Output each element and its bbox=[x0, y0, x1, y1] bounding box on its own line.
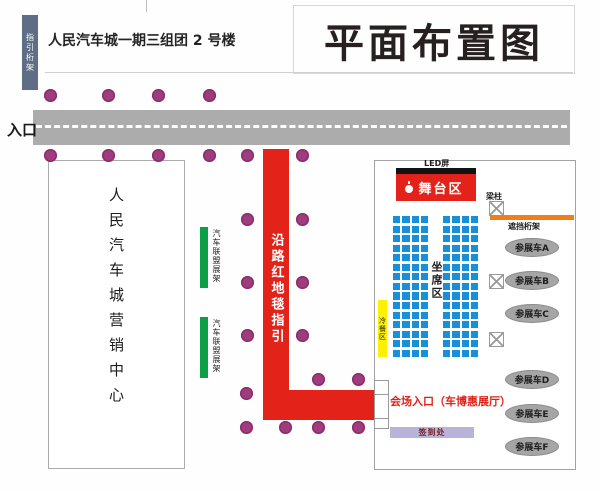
seat bbox=[462, 312, 469, 319]
exhibit-car-c: 参展车C bbox=[505, 304, 559, 323]
seat bbox=[443, 235, 450, 242]
guide-truss-box: 指引桁架 bbox=[22, 15, 38, 90]
shade-truss-bar bbox=[490, 215, 574, 220]
seat bbox=[393, 254, 400, 261]
seat bbox=[393, 235, 400, 242]
seat bbox=[452, 302, 459, 309]
exhibit-car-a: 参展车A bbox=[505, 238, 559, 257]
title-box: 平面布置图 bbox=[293, 5, 575, 74]
seat bbox=[443, 216, 450, 223]
seat bbox=[443, 321, 450, 328]
marketing-center-box: 人民汽车城营销中心 bbox=[48, 160, 185, 469]
buffet-area-label: 冷餐区 bbox=[378, 317, 388, 341]
seat bbox=[471, 331, 478, 338]
seat bbox=[452, 321, 459, 328]
seat bbox=[462, 254, 469, 261]
seat bbox=[402, 254, 409, 261]
seat bbox=[462, 321, 469, 328]
guide-truss-label: 指引桁架 bbox=[25, 33, 36, 73]
seat bbox=[471, 350, 478, 357]
exhibit-car-b: 参展车B bbox=[505, 271, 559, 290]
seat bbox=[421, 312, 428, 319]
seat bbox=[452, 292, 459, 299]
seat bbox=[421, 292, 428, 299]
seat bbox=[402, 235, 409, 242]
header-tick-line bbox=[146, 0, 147, 12]
seat bbox=[443, 292, 450, 299]
buffet-area-bar: 冷餐区 bbox=[378, 300, 387, 357]
seat bbox=[421, 283, 428, 290]
pillar-marker-icon bbox=[489, 201, 504, 216]
guide-dot bbox=[203, 89, 216, 102]
seat bbox=[471, 283, 478, 290]
seat bbox=[443, 350, 450, 357]
exhibit-car-e: 参展车E bbox=[505, 404, 559, 423]
seat bbox=[452, 331, 459, 338]
alliance-rack-label: 汽车联盟展架 bbox=[211, 229, 222, 283]
seat bbox=[412, 321, 419, 328]
seat bbox=[402, 312, 409, 319]
shade-truss-label: 遮挡桁架 bbox=[508, 221, 540, 232]
seat bbox=[471, 235, 478, 242]
seat bbox=[443, 312, 450, 319]
seat bbox=[421, 245, 428, 252]
seat bbox=[412, 226, 419, 233]
seat bbox=[421, 226, 428, 233]
seat bbox=[471, 273, 478, 280]
seating-area-label: 坐席区 bbox=[428, 261, 444, 300]
seat bbox=[471, 302, 478, 309]
seat bbox=[443, 264, 450, 271]
seat bbox=[471, 254, 478, 261]
guide-dot bbox=[44, 149, 57, 162]
pillar-marker-icon bbox=[489, 332, 504, 347]
seat bbox=[421, 321, 428, 328]
road bbox=[33, 110, 570, 145]
seat bbox=[462, 273, 469, 280]
guide-dot bbox=[203, 149, 216, 162]
seat bbox=[393, 331, 400, 338]
seat bbox=[443, 254, 450, 261]
seat bbox=[452, 312, 459, 319]
seat bbox=[393, 245, 400, 252]
page-title: 平面布置图 bbox=[324, 11, 544, 69]
seat bbox=[412, 350, 419, 357]
seat bbox=[393, 273, 400, 280]
seat bbox=[443, 273, 450, 280]
alliance-rack-label: 汽车联盟展架 bbox=[211, 319, 222, 373]
seat bbox=[402, 283, 409, 290]
seat bbox=[462, 292, 469, 299]
venue-entrance-label: 会场入口（车博惠展厅） bbox=[390, 393, 511, 409]
seat bbox=[421, 331, 428, 338]
seat bbox=[462, 340, 469, 347]
door-divider bbox=[375, 394, 388, 395]
guide-dot bbox=[296, 276, 309, 289]
seat bbox=[471, 226, 478, 233]
seat bbox=[412, 292, 419, 299]
seat bbox=[412, 216, 419, 223]
seat bbox=[412, 302, 419, 309]
stage-area: 舞台区 bbox=[396, 174, 476, 201]
seat bbox=[452, 216, 459, 223]
guide-dot bbox=[152, 149, 165, 162]
guide-dot bbox=[352, 421, 365, 434]
seat bbox=[452, 235, 459, 242]
seat bbox=[421, 350, 428, 357]
seat bbox=[443, 283, 450, 290]
seat bbox=[443, 340, 450, 347]
red-carpet-label: 沿路红地毯指引 bbox=[267, 233, 286, 345]
seat bbox=[402, 226, 409, 233]
seat bbox=[402, 340, 409, 347]
guide-dot bbox=[240, 387, 253, 400]
seat bbox=[412, 273, 419, 280]
seat bbox=[421, 264, 428, 271]
seat bbox=[393, 350, 400, 357]
seat bbox=[471, 340, 478, 347]
seat bbox=[421, 254, 428, 261]
seat bbox=[443, 226, 450, 233]
seat bbox=[402, 321, 409, 328]
seat bbox=[412, 331, 419, 338]
seat bbox=[421, 216, 428, 223]
seat bbox=[452, 340, 459, 347]
marketing-center-label: 人民汽车城营销中心 bbox=[106, 187, 127, 412]
seat bbox=[452, 283, 459, 290]
signin-desk-bar: 签到处 bbox=[390, 427, 474, 438]
seat bbox=[462, 226, 469, 233]
seat bbox=[402, 216, 409, 223]
seat bbox=[462, 331, 469, 338]
seat bbox=[402, 331, 409, 338]
seat bbox=[421, 302, 428, 309]
seat bbox=[471, 292, 478, 299]
guide-dot bbox=[312, 421, 325, 434]
seat bbox=[452, 350, 459, 357]
guide-dot bbox=[241, 276, 254, 289]
seat bbox=[462, 264, 469, 271]
seat bbox=[412, 245, 419, 252]
guide-dot bbox=[312, 373, 325, 386]
seat bbox=[412, 264, 419, 271]
guide-dot bbox=[279, 421, 292, 434]
seat bbox=[471, 264, 478, 271]
guide-dot bbox=[44, 89, 57, 102]
seat bbox=[452, 245, 459, 252]
exhibit-car-f: 参展车F bbox=[505, 437, 559, 456]
seat bbox=[471, 216, 478, 223]
road-center-dashed-line bbox=[36, 125, 567, 128]
seat bbox=[402, 302, 409, 309]
seat bbox=[462, 283, 469, 290]
seat bbox=[471, 245, 478, 252]
door-divider bbox=[375, 418, 388, 419]
seat bbox=[393, 340, 400, 347]
seat bbox=[412, 312, 419, 319]
alliance-rack-bar bbox=[200, 317, 208, 378]
seat bbox=[412, 283, 419, 290]
road-entrance-label: 入口 bbox=[7, 119, 37, 140]
guide-dot bbox=[241, 329, 254, 342]
guide-dot bbox=[241, 213, 254, 226]
guide-dot bbox=[296, 213, 309, 226]
microphone-icon bbox=[405, 185, 413, 193]
guide-dot bbox=[152, 89, 165, 102]
seat bbox=[443, 331, 450, 338]
guide-dot bbox=[102, 89, 115, 102]
guide-dot bbox=[102, 149, 115, 162]
seat bbox=[421, 235, 428, 242]
seat bbox=[393, 216, 400, 223]
signin-desk-label: 签到处 bbox=[419, 427, 446, 438]
building-label: 人民汽车城一期三组团 2 号楼 bbox=[48, 30, 236, 50]
stage-label: 舞台区 bbox=[418, 178, 463, 197]
seat bbox=[462, 216, 469, 223]
pillar-marker-icon bbox=[489, 274, 504, 289]
seat bbox=[462, 350, 469, 357]
seat bbox=[452, 264, 459, 271]
guide-dot bbox=[296, 329, 309, 342]
seat bbox=[393, 321, 400, 328]
seat bbox=[402, 264, 409, 271]
seat bbox=[421, 340, 428, 347]
guide-dot bbox=[352, 373, 365, 386]
seat bbox=[412, 235, 419, 242]
seat bbox=[402, 350, 409, 357]
seat bbox=[402, 273, 409, 280]
seat bbox=[393, 226, 400, 233]
seat bbox=[471, 312, 478, 319]
red-carpet-vertical: 沿路红地毯指引 bbox=[263, 149, 289, 420]
seat bbox=[412, 340, 419, 347]
seat bbox=[443, 302, 450, 309]
seat bbox=[393, 302, 400, 309]
seat bbox=[393, 264, 400, 271]
seat bbox=[471, 321, 478, 328]
floor-plan-diagram: 指引桁架 人民汽车城一期三组团 2 号楼 平面布置图 入口 人民汽车城营销中心 … bbox=[0, 0, 600, 491]
guide-dot bbox=[296, 149, 309, 162]
seat bbox=[462, 245, 469, 252]
seat bbox=[452, 273, 459, 280]
seat bbox=[452, 254, 459, 261]
seat bbox=[393, 283, 400, 290]
seat bbox=[402, 245, 409, 252]
seat bbox=[462, 235, 469, 242]
seat bbox=[402, 292, 409, 299]
guide-dot bbox=[241, 149, 254, 162]
alliance-rack-bar bbox=[200, 227, 208, 288]
seat bbox=[393, 312, 400, 319]
exhibit-car-d: 参展车D bbox=[505, 370, 559, 389]
seat bbox=[421, 273, 428, 280]
seat bbox=[393, 292, 400, 299]
seat bbox=[412, 254, 419, 261]
seat bbox=[462, 302, 469, 309]
seat bbox=[443, 245, 450, 252]
seat bbox=[452, 226, 459, 233]
guide-dot bbox=[240, 421, 253, 434]
venue-entrance-door bbox=[374, 380, 389, 429]
